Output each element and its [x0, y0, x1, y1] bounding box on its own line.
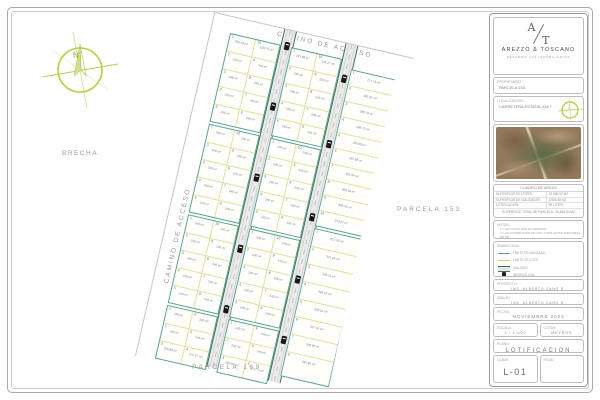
lot-number: 5: [251, 344, 254, 348]
lot-number: 9: [252, 58, 255, 62]
lot-area: 240 m²: [186, 257, 196, 262]
lot-area: 240 m²: [174, 313, 184, 318]
lot-area: 337.04 m²: [310, 326, 324, 332]
lot-area: 240 m²: [294, 186, 304, 191]
lot-area: 240 m²: [207, 166, 217, 171]
project-field: PROYECTO: ING. ALBERTO CANO R.: [493, 279, 584, 291]
lot-number: 4: [281, 102, 284, 106]
date-field: FECHA: NOVIEMBRE 2023: [493, 307, 584, 321]
legend-title: SIMBOLOGIA:: [497, 244, 583, 248]
project-value: ING. ALBERTO CANO R.: [494, 287, 583, 291]
car-icon: [326, 140, 333, 149]
note-line: 2. LAS SUPERFICIES DE LOS LOTES ESTAN IN…: [500, 232, 583, 239]
lot-area: 321.26 m²: [326, 255, 340, 261]
lot-number: 8: [289, 181, 292, 185]
lot-number: 9: [272, 254, 275, 258]
lot-area: 218.27 m²: [321, 60, 335, 66]
sheet-title-field: PLANO: LOTIFICACION: [493, 339, 584, 353]
lot-number: 7: [202, 275, 205, 279]
lot-number: 10: [320, 211, 325, 215]
company-tagline: DESARROLLOS INMOBILIARIOS: [494, 55, 583, 59]
lot-area: 240 m²: [211, 263, 221, 268]
company-logo: A T AREZZO & TOSCANO DESARROLLOS INMOBIL…: [493, 17, 584, 75]
lot-number: 7: [244, 93, 247, 97]
lot-number: 1: [189, 216, 192, 220]
legend-item: VIALIDAD: [494, 265, 583, 271]
lot-number: 6: [260, 306, 263, 310]
monogram-icon: A T: [527, 22, 551, 46]
lot-area: 240 m²: [249, 99, 259, 104]
lot-number: 4: [260, 192, 263, 196]
lot-area: 240 m²: [232, 58, 242, 63]
sheet-number-field: HOJA:: [540, 355, 585, 383]
lot-area: 297.59 m²: [349, 157, 363, 163]
lot-area: 240 m²: [240, 137, 250, 142]
lot-number: 10: [318, 55, 323, 59]
parcela-169-label: PARCELA 169: [192, 364, 262, 371]
lot-number: 10: [256, 41, 261, 45]
lot-number: 8: [287, 353, 290, 357]
lot-area: 272.57 m²: [188, 353, 202, 359]
lot-number: 7: [264, 289, 267, 293]
lot-area: 329.15 m²: [318, 291, 332, 297]
drawing-sheet: N CAMINO DE ACCESO CAMINO DE ACCESO 1255…: [0, 0, 600, 400]
lot-area: 240 m²: [178, 292, 188, 297]
lot-area: 317.32 m²: [330, 238, 344, 244]
lot-area: 240 m²: [224, 93, 234, 98]
lot-number: 3: [160, 342, 163, 346]
lot-area: 240 m²: [269, 295, 279, 300]
lot-number: 6: [240, 111, 243, 115]
company-name: AREZZO & TOSCANO: [494, 47, 583, 53]
compass-north-label: N: [73, 51, 79, 60]
lot-number: 5: [215, 105, 218, 109]
lot-number: 6: [219, 202, 222, 206]
legend-item-label: VIALIDAD: [513, 266, 528, 270]
lot-area: 240 m²: [289, 204, 299, 209]
lot-area: 240 m²: [232, 172, 242, 177]
lot-number: 3: [243, 266, 246, 270]
lot-number: 10: [297, 146, 302, 150]
lot-area: 240 m²: [194, 336, 204, 341]
mini-compass-icon: [558, 98, 582, 122]
scale-units-row: ESCALA: 1 : 1,000 COTAS: METROS: [493, 323, 584, 337]
lot-number: 1: [272, 140, 275, 144]
lot-number: 6: [193, 313, 196, 317]
compass-rose-icon: N: [40, 28, 120, 112]
lot-area: 240 m²: [231, 344, 241, 349]
lot-number: 5: [299, 300, 302, 304]
lot-number: 9: [231, 149, 234, 153]
lot-area: 240 m²: [215, 245, 225, 250]
lot-area: 240 m²: [224, 207, 234, 212]
lot-area: 240 m²: [306, 131, 316, 136]
lot-number: 9: [210, 240, 213, 244]
lot-area: 240 m²: [319, 78, 329, 83]
lot-number: 4: [219, 88, 222, 92]
lot-area: 367.85 m²: [302, 361, 316, 367]
lot-number: 3: [181, 251, 184, 255]
lot-number: 1: [169, 307, 172, 311]
lot-number: 9: [313, 72, 316, 76]
lot-number: 4: [185, 348, 188, 352]
areas-table-row: LOTIFICACION90 LOTES: [494, 203, 583, 209]
car-icon: [284, 42, 291, 51]
lot-number: 4: [177, 269, 180, 273]
lot-number: 4: [341, 118, 344, 122]
lot-area: 240 m²: [302, 151, 312, 156]
car-icon: [237, 244, 244, 253]
lot-number: 6: [295, 318, 298, 322]
lot-area: 333.10 m²: [314, 308, 328, 314]
owner-field: PROPIETARIO: PARCELA 153: [493, 77, 584, 94]
lot-area: 289.70 m²: [356, 126, 370, 132]
lot-number: 10: [214, 222, 219, 226]
lot-area: 240 m²: [190, 240, 200, 245]
scale-label: ESCALA:: [497, 326, 537, 330]
parcela-153-label: PARCELA 153: [397, 206, 461, 213]
lot-area: 240 m²: [203, 298, 213, 303]
location-field: LOCALIZACION: CARRETERA ESTATAL KM 7: [493, 96, 584, 122]
lot-area: 240 m²: [228, 190, 238, 195]
lot-area: 240 m²: [265, 198, 275, 203]
lot-area: 240 m²: [277, 146, 287, 151]
units-field: COTAS: METROS: [540, 323, 585, 337]
car-icon: [309, 213, 316, 222]
lot-number: 8: [309, 90, 312, 94]
lot-number: 6: [255, 327, 258, 331]
lot-number: 4: [239, 283, 242, 287]
lot-area: 313.37 m²: [334, 219, 348, 225]
lot-number: 4: [303, 283, 306, 287]
lot-area: 240 m²: [256, 350, 266, 355]
lot-number: 9: [323, 196, 326, 200]
lot-area: 240 m²: [286, 108, 296, 113]
areas-table-total: SUPERFICIE TOTAL DE PARCELA : 26,636.50 …: [494, 210, 583, 214]
lot-number: 7: [291, 335, 294, 339]
scale-field: ESCALA: 1 : 1,000: [493, 323, 538, 337]
lot-area: 240 m²: [236, 155, 246, 160]
legend-item-label: SENTIDO VIAL: [513, 273, 535, 277]
lot-area: 240 m²: [248, 271, 258, 276]
lot-area: 240 m²: [257, 64, 267, 69]
brecha-label: BRECHA: [62, 150, 98, 157]
owner-value: PARCELA 153: [499, 86, 583, 91]
lot-area: 240 m²: [198, 318, 208, 323]
lot-number: 1: [230, 321, 233, 325]
sheet-code-value: L-01: [494, 367, 537, 377]
lot-area: 240 m²: [281, 242, 291, 247]
car-icon: [280, 336, 287, 345]
lot-number: 5: [277, 119, 280, 123]
lot-number: 10: [276, 236, 281, 240]
lot-area: 240 m²: [215, 131, 225, 136]
car-icon: [294, 275, 301, 284]
lot-area: 240 m²: [310, 113, 320, 118]
lot-number: 1: [210, 126, 213, 130]
lot-area: 240 m²: [220, 111, 230, 116]
lot-number: 6: [198, 292, 201, 296]
owner-label: PROPIETARIO:: [497, 80, 583, 84]
line-olive-icon: [498, 257, 510, 263]
lot-number: 2: [185, 234, 188, 238]
lot-number: 5: [256, 210, 259, 214]
lot-area: 240 m²: [170, 330, 180, 335]
lot-area: 240 m²: [199, 202, 209, 207]
sheet-code-row: CLAVE: L-01 HOJA:: [493, 355, 584, 383]
legend-item-label: LIMITE DE LOTE: [513, 258, 538, 262]
drawer-value: ING. ALBERTO CANO R.: [494, 301, 583, 305]
lot-area: 240 m²: [244, 289, 254, 294]
lot-area: 240 m²: [269, 181, 279, 186]
lot-number: 5: [235, 301, 238, 305]
lot-area: 271.75 m²: [367, 79, 381, 85]
lot-number: 2: [312, 248, 315, 252]
lot-number: 1: [231, 35, 234, 39]
car-icon: [223, 305, 230, 314]
lot-number: 3: [222, 356, 225, 360]
project-label: PROYECTO:: [497, 282, 583, 286]
sheet-code-field: CLAVE: L-01: [493, 355, 538, 383]
satellite-photo-frame: [493, 124, 584, 182]
road-icon: [498, 265, 510, 271]
lot-number: 7: [331, 165, 334, 169]
lot-number: 2: [206, 143, 209, 147]
lot-number: 3: [345, 102, 348, 106]
lot-number: 5: [173, 286, 176, 290]
notes-lines: 1. LAS COTAS SON EN METROS.2. LAS SUPERF…: [494, 228, 583, 239]
car-icon: [498, 272, 510, 277]
lot-area: 240 m²: [261, 216, 271, 221]
lot-area: 240 m²: [245, 117, 255, 122]
lot-number: 3: [285, 84, 288, 88]
lot-number: 5: [338, 134, 341, 138]
lot-area: 240 m²: [235, 327, 245, 332]
drawer-field: DIBUJO: ING. ALBERTO CANO R.: [493, 293, 584, 305]
lot-number: 10: [235, 131, 240, 135]
lot-number: 1: [293, 49, 296, 53]
units-label: COTAS:: [544, 326, 584, 330]
date-label: FECHA:: [497, 310, 583, 314]
lot-number: 7: [305, 108, 308, 112]
sheet-title-value: LOTIFICACION: [494, 348, 583, 353]
lot-number: 8: [327, 180, 330, 184]
lot-number: 6: [280, 216, 283, 220]
lot-area: 325.21 m²: [322, 273, 336, 279]
lot-area: 240 m²: [207, 280, 217, 285]
lot-area: 240 m²: [290, 90, 300, 95]
lot-number: 1: [352, 71, 355, 75]
lot-area: 240 m²: [228, 76, 238, 81]
lot-number: 3: [264, 175, 267, 179]
lot-area: 240 m²: [194, 222, 204, 227]
legend-section: SIMBOLOGIA: LIMITE DE MANZANALIMITE DE L…: [493, 241, 584, 277]
lot-area: 240 m²: [252, 254, 262, 259]
lot-area: 240 m²: [298, 169, 308, 174]
legend-items: LIMITE DE MANZANALIMITE DE LOTEVIALIDADS…: [494, 250, 583, 278]
lot-number: 2: [289, 67, 292, 71]
lot-area: 240 m²: [211, 149, 221, 154]
legend-item: LIMITE DE LOTE: [494, 257, 583, 263]
lot-area: 340.99 m²: [306, 343, 320, 349]
lot-number: 2: [165, 324, 168, 328]
lot-area: 229.75 m²: [259, 46, 273, 52]
lot-number: 7: [223, 184, 226, 188]
lot-area: 240 m²: [273, 163, 283, 168]
lot-area: 309.43 m²: [338, 204, 352, 210]
lot-area: 240 m²: [314, 96, 324, 101]
lot-area: 281.81 m²: [363, 95, 377, 101]
lot-number: 2: [226, 339, 229, 343]
lot-area: 240 m²: [294, 72, 304, 77]
lot-area: 285.76 m²: [360, 110, 374, 116]
monogram-letter-a: A: [528, 21, 536, 34]
lot-area: 240 m²: [253, 82, 263, 87]
lot-number: 6: [301, 125, 304, 129]
lot-number: 2: [349, 87, 352, 91]
areas-table-rows: SUPERFICIE DE LOTES22,980.02 M2SUPERFICI…: [494, 192, 583, 209]
car-icon: [341, 74, 348, 83]
line-teal-icon: [498, 250, 510, 256]
lot-area: 240 m²: [219, 228, 229, 233]
lot-number: 7: [284, 198, 287, 202]
lot-area: 293.65 m²: [352, 141, 366, 147]
lot-number: 1: [316, 230, 319, 234]
car-icon: [253, 173, 260, 182]
lot-area: 240 m²: [240, 306, 250, 311]
lot-area: 305.48 m²: [342, 188, 356, 194]
lot-number: 8: [206, 257, 209, 261]
drawer-label: DIBUJO:: [497, 296, 583, 300]
lot-number: 5: [189, 330, 192, 334]
legend-item-label: LIMITE DE MANZANA: [513, 251, 545, 255]
title-block: A T AREZZO & TOSCANO DESARROLLOS INMOBIL…: [489, 13, 588, 387]
satellite-photo: [496, 127, 581, 179]
lot-number: 6: [334, 149, 337, 153]
lot-area: 240 m²: [260, 333, 270, 338]
lot-number: 2: [227, 53, 230, 57]
lot-area: 243.69 m²: [296, 54, 310, 60]
legend-item: SENTIDO VIAL: [494, 272, 583, 277]
lot-area: 255.13 m²: [234, 40, 248, 46]
lot-number: 3: [202, 161, 205, 165]
lot-number: 5: [194, 196, 197, 200]
lot-area: 240 m²: [256, 236, 266, 241]
date-value: NOVIEMBRE 2023: [494, 315, 583, 320]
notes-section: NOTAS: 1. LAS COTAS SON EN METROS.2. LAS…: [493, 220, 584, 239]
sheet-number-label: HOJA:: [544, 358, 584, 362]
lot-number: 2: [247, 248, 250, 252]
lot-area: 240 m²: [273, 277, 283, 282]
car-icon: [270, 102, 277, 111]
lot-number: 1: [251, 230, 254, 234]
legend-item: LIMITE DE MANZANA: [494, 250, 583, 256]
lot-area: 240 m²: [203, 184, 213, 189]
lot-number: 3: [223, 70, 226, 74]
lot-area: 240 m²: [282, 125, 292, 130]
lot-area: 240 m²: [182, 275, 192, 280]
lot-number: 8: [268, 271, 271, 275]
units-value: METROS: [541, 331, 584, 335]
scale-value: 1 : 1,000: [494, 331, 537, 335]
lot-area: 240 m²: [285, 221, 295, 226]
lot-area: 240 m²: [265, 312, 275, 317]
sheet-code-label: CLAVE:: [497, 358, 537, 362]
monogram-letter-t: T: [542, 34, 549, 47]
lot-area: 240 m²: [277, 259, 287, 264]
lot-number: 4: [198, 178, 201, 182]
lot-area: 301.54 m²: [345, 173, 359, 179]
lot-number: 3: [308, 265, 311, 269]
lot-number: 2: [268, 157, 271, 161]
lot-number: 8: [248, 76, 251, 80]
areas-table-title: CUADRO DE AREAS: [494, 185, 583, 192]
lot-number: 9: [293, 163, 296, 167]
areas-table: CUADRO DE AREAS SUPERFICIE DE LOTES22,98…: [493, 184, 584, 218]
sheet-title-label: PLANO:: [497, 342, 583, 346]
lot-area: 250.85 m²: [163, 347, 177, 353]
lot-number: 8: [227, 166, 230, 170]
